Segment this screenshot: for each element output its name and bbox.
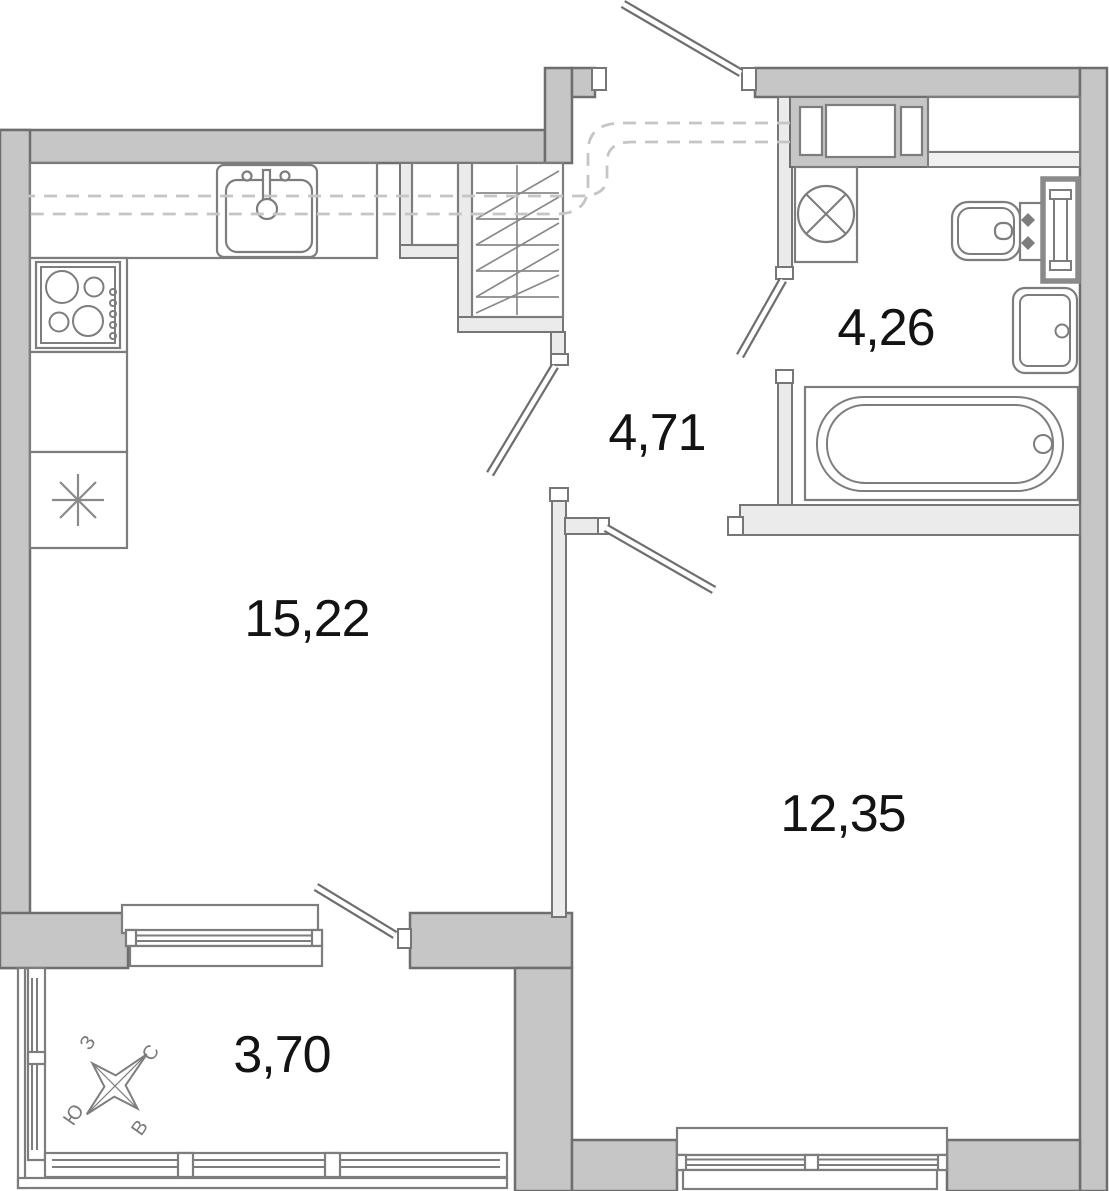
label-balcony-area: 3,70 — [233, 1026, 330, 1084]
label-bathroom-area: 4,26 — [837, 299, 934, 357]
wall-bedroom-bottom-left — [572, 1140, 677, 1191]
balcony-door-leaf-icon — [316, 887, 395, 935]
bathroom-door-leaf-icon — [740, 280, 783, 356]
bathroom-cabinet — [928, 97, 1080, 152]
floor-plan-svg: 15,22 4,71 4,26 12,35 3,70 С З Ю В — [0, 0, 1109, 1191]
wardrobe-hatch-icon — [472, 163, 563, 317]
jamb-living-top — [551, 354, 568, 365]
jamb-living-bottom — [550, 488, 568, 501]
living-door-leaf-icon — [490, 366, 555, 474]
compass-south-label: Ю — [59, 1100, 89, 1129]
wall-balcony-door-pier — [410, 913, 572, 968]
wall-bottom-left — [0, 913, 128, 968]
washing-machine-icon — [795, 167, 857, 262]
wall-top-left — [0, 130, 545, 163]
partition-bath-bottom — [740, 505, 1080, 535]
bedroom-window — [677, 1128, 947, 1189]
wall-balcony-right — [515, 968, 572, 1191]
partition-stub-above-door — [551, 332, 565, 356]
partition-closet-mid — [458, 163, 472, 332]
towel-rail-icon — [1043, 179, 1078, 281]
balcony-glazing-left — [18, 968, 45, 1188]
label-bedroom-area: 12,35 — [780, 785, 905, 843]
jamb-entrance-right — [742, 68, 756, 90]
hallway-closet — [412, 163, 563, 317]
kitchen-sink-icon — [217, 165, 317, 257]
wall-bedroom-bottom-right — [947, 1140, 1080, 1191]
kitchen-counter-box — [30, 352, 127, 452]
closet-section-a — [412, 163, 458, 245]
partition-closet-bottom-b — [458, 317, 563, 332]
washbasin-icon — [1013, 288, 1077, 373]
jamb-bath-top — [776, 267, 793, 279]
bedroom-door-leaf-icon — [606, 528, 714, 590]
bathroom-cabinet-strip — [928, 152, 1080, 167]
partition-bath-left-lower — [778, 383, 792, 520]
living-balcony-window — [122, 905, 322, 966]
compass-rose-icon: С З Ю В — [59, 1032, 169, 1140]
partition-closet-left — [400, 163, 412, 258]
partition-living-bedroom — [552, 501, 566, 917]
stove-icon — [36, 262, 120, 348]
label-hallway-area: 4,71 — [608, 404, 705, 462]
window-sill — [683, 1170, 937, 1189]
jamb-bath-bottom — [776, 370, 793, 383]
wall-left — [0, 130, 30, 968]
bathtub-icon — [805, 387, 1078, 500]
window-sill — [130, 946, 322, 966]
wall-right — [1080, 68, 1107, 1191]
wall-top-right — [755, 68, 1080, 97]
jamb-bedroom-right — [728, 517, 743, 535]
bathroom — [790, 97, 1080, 500]
kitchen-counter-top — [30, 163, 377, 258]
label-living-kitchen-area: 15,22 — [244, 590, 369, 648]
jamb-entrance-left — [592, 68, 606, 90]
bathroom-niche — [790, 97, 930, 167]
kitchen — [30, 163, 377, 548]
compass-west-label: З — [76, 1032, 101, 1055]
toilet-icon — [952, 202, 1044, 260]
floor-plan: 15,22 4,71 4,26 12,35 3,70 С З Ю В — [0, 0, 1109, 1191]
partition-closet-bottom-a — [400, 245, 458, 258]
jamb-balcony-door — [398, 929, 411, 948]
entrance-door-leaf-icon — [623, 4, 741, 73]
wall-entrance-pier — [545, 68, 572, 163]
balcony-glazing-bottom — [18, 1153, 507, 1188]
partition-bedroom-door-stub — [565, 518, 598, 534]
compass-east-label: В — [127, 1116, 153, 1140]
